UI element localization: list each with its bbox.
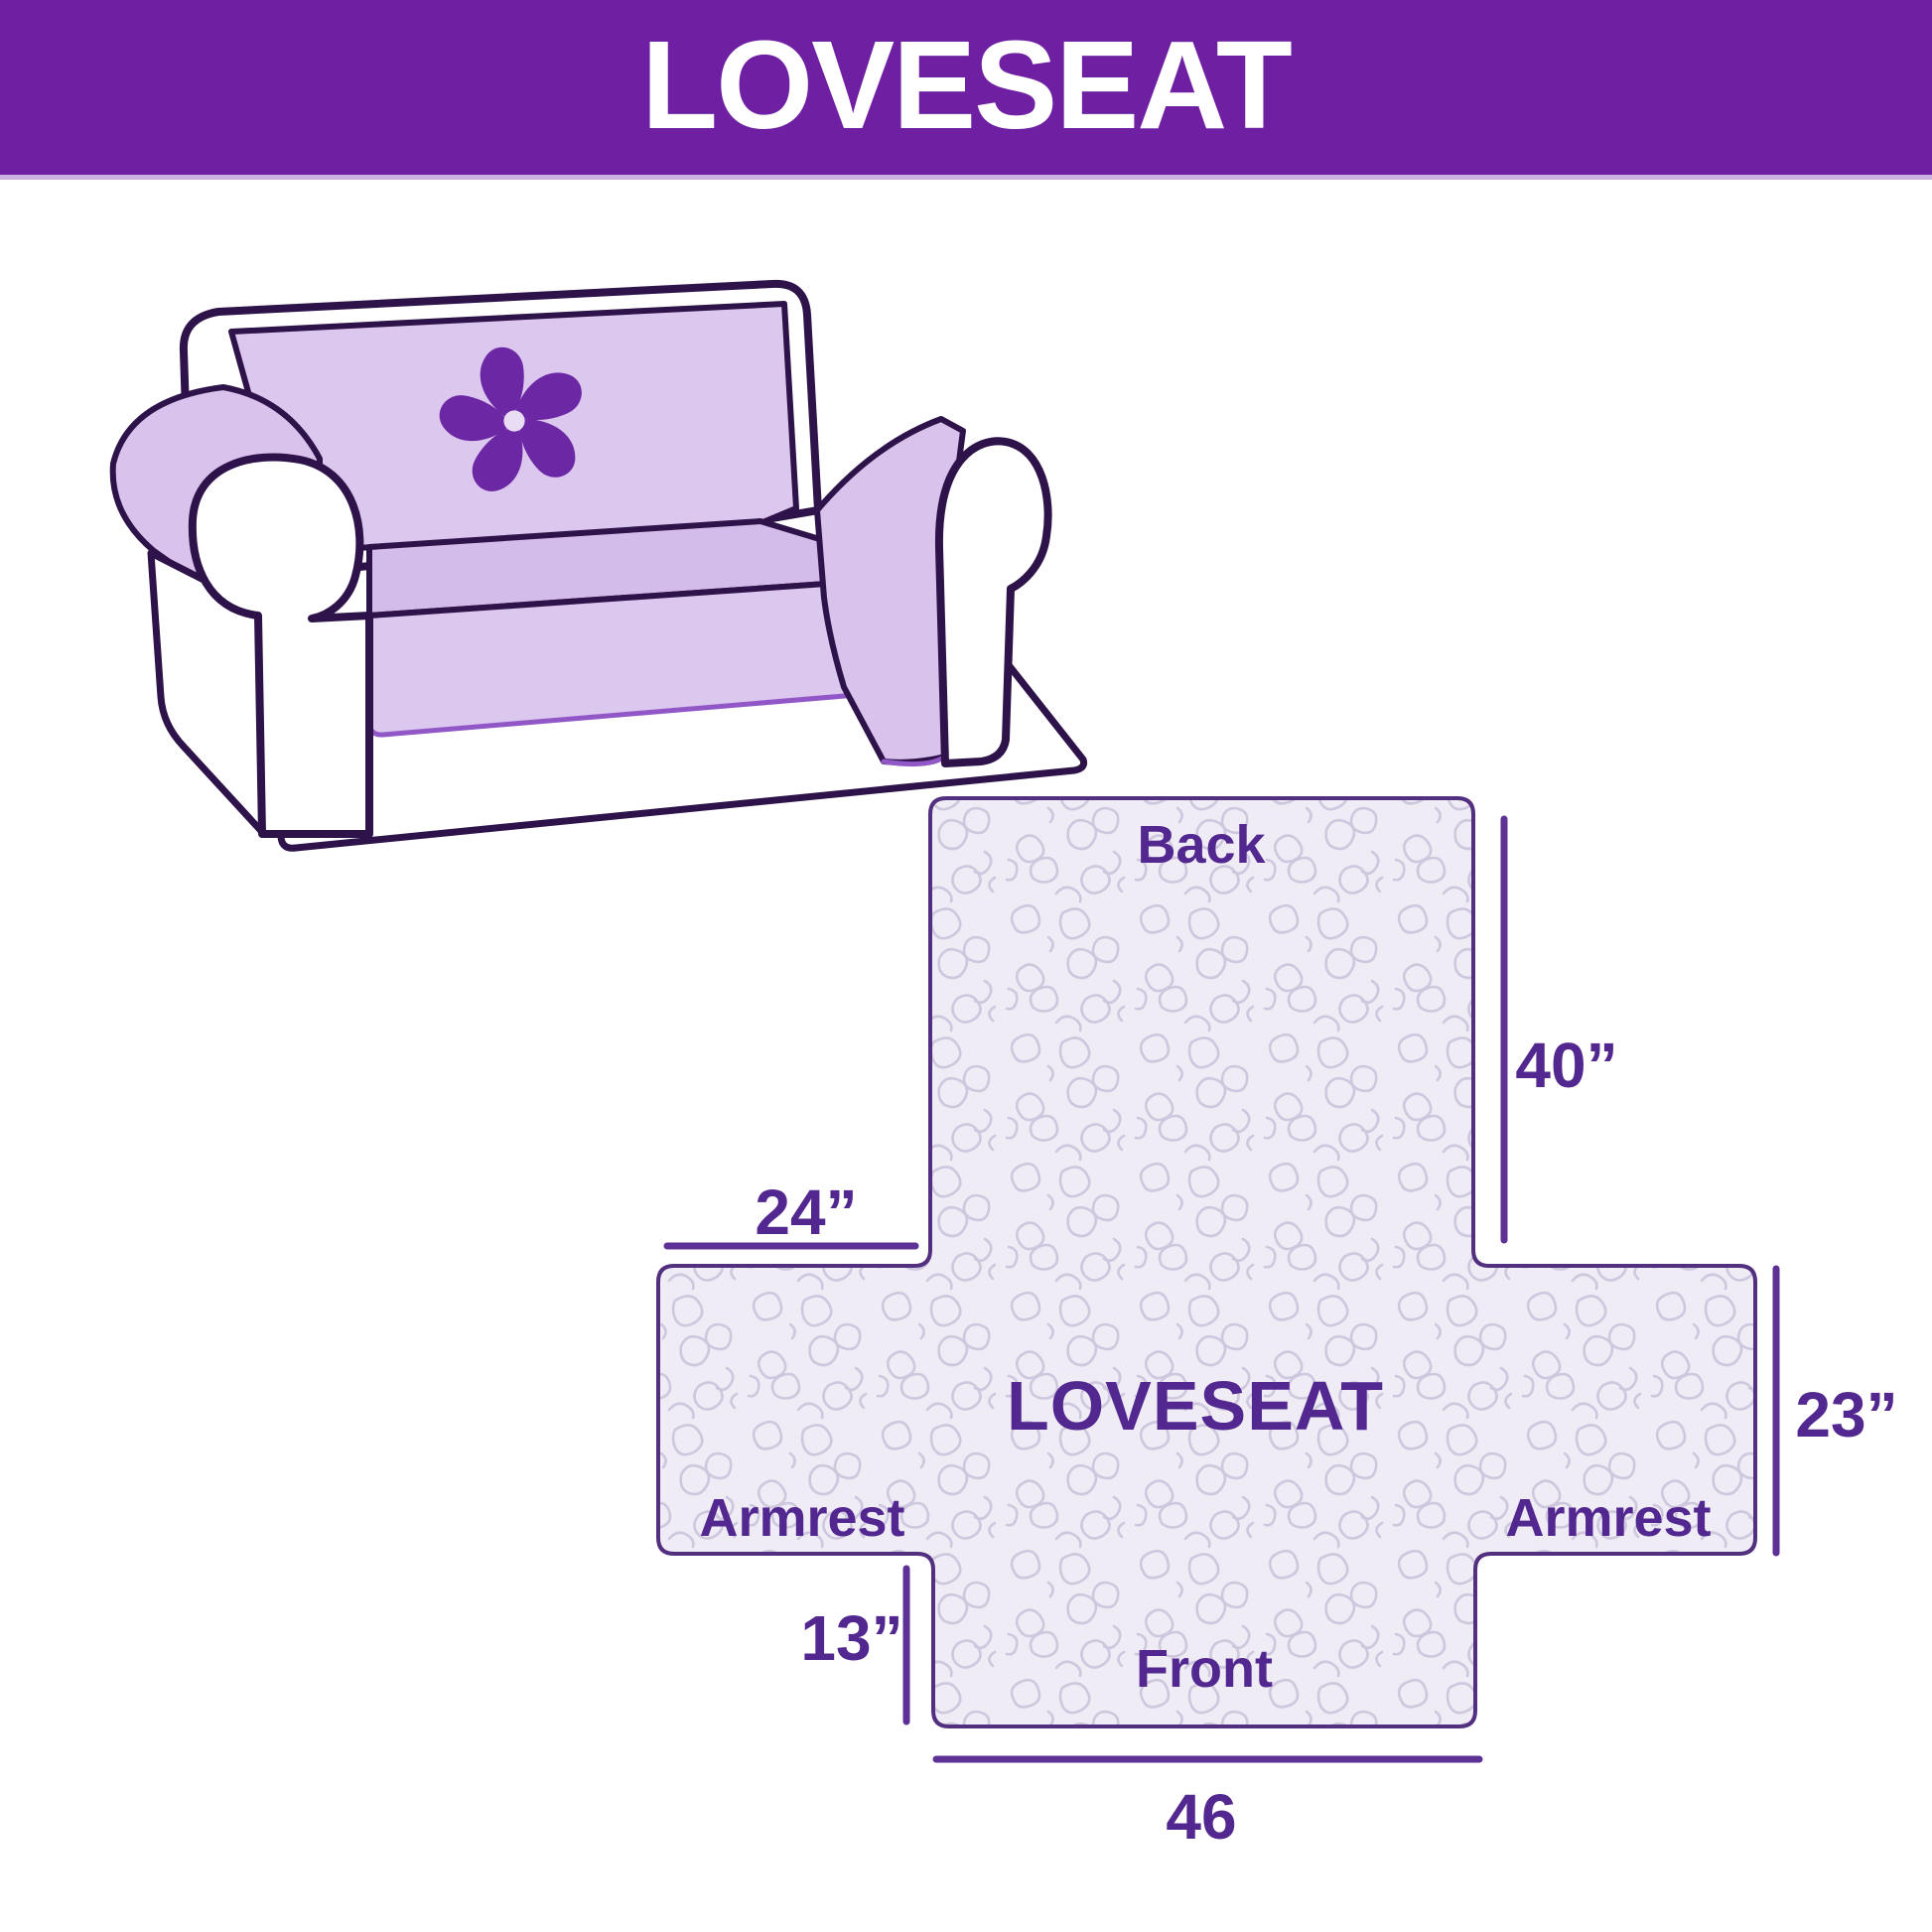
cover-diagram: Back LOVESEAT Armrest Armrest Front 40” … [616, 774, 1932, 1876]
cover-outline [658, 798, 1755, 1726]
dim-back-height: 40” [1515, 1030, 1617, 1101]
center-label: LOVESEAT [1007, 1367, 1384, 1445]
header-banner: LOVESEAT [0, 0, 1932, 180]
front-panel-label: Front [1136, 1639, 1273, 1699]
armrest-right-label: Armrest [1505, 1488, 1711, 1548]
back-panel-label: Back [1137, 815, 1266, 875]
dim-front-skirt-height: 13” [800, 1602, 902, 1674]
dim-back-top-width: 24” [755, 1176, 857, 1248]
dim-armrest-height: 23” [1795, 1379, 1897, 1450]
page-title: LOVESEAT [641, 23, 1291, 148]
armrest-left-label: Armrest [699, 1488, 904, 1548]
sofa-illustration [89, 220, 1092, 866]
main-canvas: Back LOVESEAT Armrest Armrest Front 40” … [0, 180, 1932, 1932]
dim-front-bottom-width: 46 [1166, 1781, 1236, 1853]
